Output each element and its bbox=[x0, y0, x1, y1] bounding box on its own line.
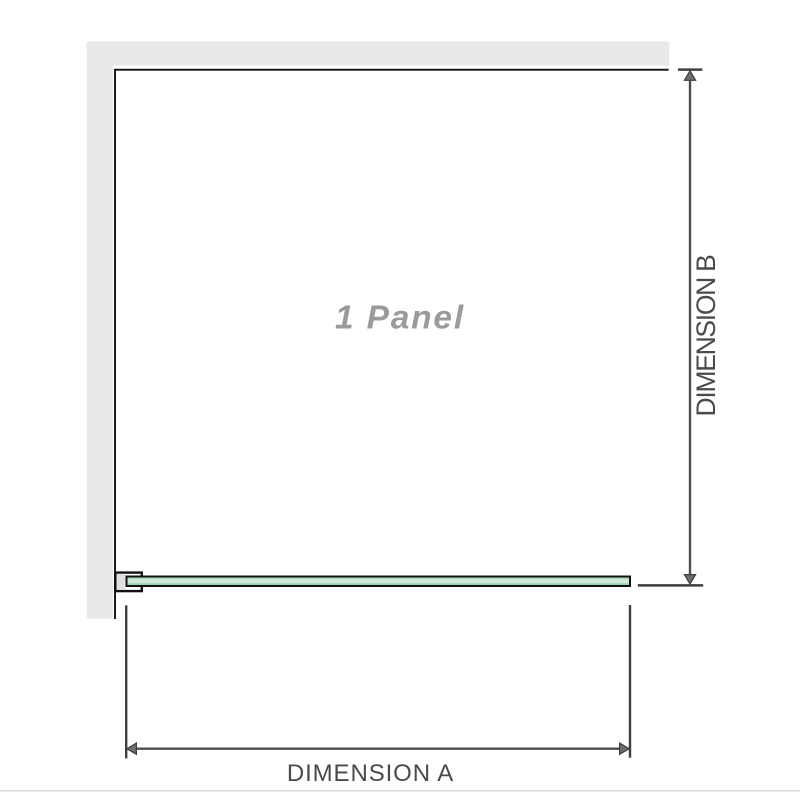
svg-text:DIMENSION A: DIMENSION A bbox=[287, 760, 454, 787]
svg-text:DIMENSION B: DIMENSION B bbox=[691, 255, 721, 417]
svg-text:1 Panel: 1 Panel bbox=[335, 300, 465, 337]
